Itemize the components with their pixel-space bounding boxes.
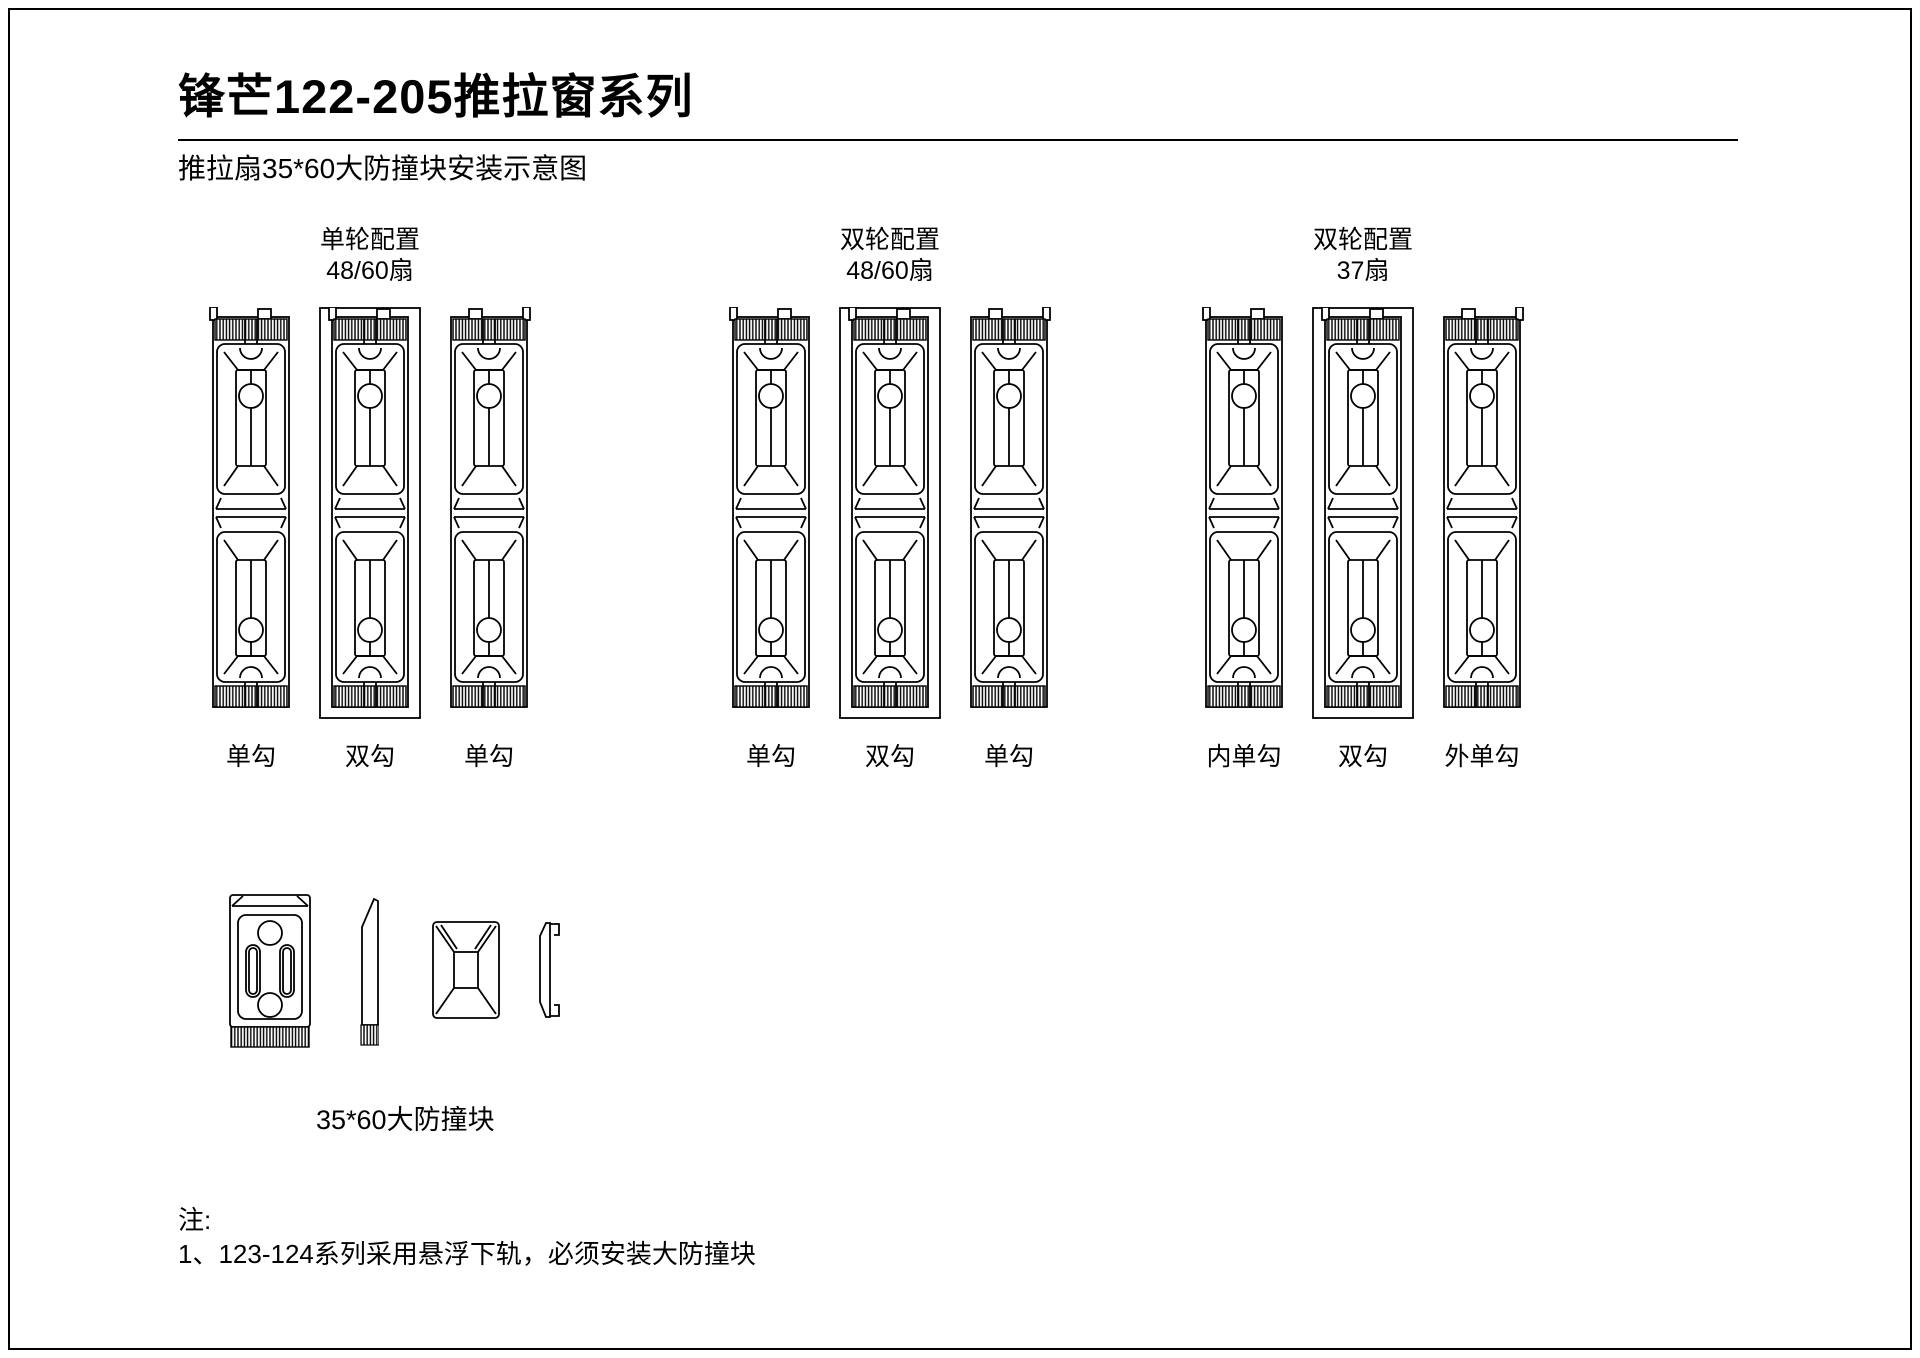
title-divider [178, 139, 1738, 141]
profile-cell: 内单勾 [1202, 307, 1286, 773]
hook-label: 外单勾 [1444, 737, 1519, 773]
sash-profile-inner-single-hook-diagram [1202, 307, 1286, 719]
sash-profile-double-hook-diagram [839, 307, 941, 719]
profile-cell: 单勾 [209, 307, 293, 773]
buffer-block-bracket-diagram [533, 920, 563, 1020]
hook-label: 双勾 [1338, 737, 1388, 773]
sash-profile-outer-single-hook-diagram [1440, 307, 1524, 719]
group-config-label: 双轮配置 [840, 225, 940, 256]
sash-profile-single-hook-diagram [447, 307, 531, 719]
group-sash-label: 48/60扇 [840, 256, 940, 287]
group-header: 双轮配置 37扇 [1313, 225, 1413, 287]
sash-profile-single-hook-diagram [967, 307, 1051, 719]
profile-cell: 外单勾 [1440, 307, 1524, 773]
sash-profile-single-hook-diagram [209, 307, 293, 719]
profiles-row: 单勾 双勾 单勾 [729, 307, 1051, 773]
profile-cell: 单勾 [447, 307, 531, 773]
config-group-double-roller-48-60: 双轮配置 48/60扇 单勾 双勾 单勾 [725, 225, 1055, 773]
group-sash-label: 48/60扇 [320, 256, 420, 287]
profile-cell: 单勾 [729, 307, 813, 773]
notes-heading: 注: [178, 1203, 756, 1237]
page-subtitle: 推拉扇35*60大防撞块安装示意图 [178, 147, 587, 187]
config-group-double-roller-37: 双轮配置 37扇 内单勾 双勾 外单勾 [1198, 225, 1528, 773]
profile-cell: 双勾 [1312, 307, 1414, 773]
hook-label: 双勾 [345, 737, 395, 773]
sash-profile-double-hook-diagram [319, 307, 421, 719]
profile-cell: 双勾 [319, 307, 421, 773]
group-header: 双轮配置 48/60扇 [840, 225, 940, 287]
config-group-single-roller: 单轮配置 48/60扇 单勾 双勾 单勾 [205, 225, 535, 773]
profiles-row: 内单勾 双勾 外单勾 [1202, 307, 1524, 773]
sash-profile-single-hook-diagram [729, 307, 813, 719]
drawing-sheet: 锋芒122-205推拉窗系列 推拉扇35*60大防撞块安装示意图 单轮配置 48… [0, 0, 1920, 1358]
note-item: 1、123-124系列采用悬浮下轨，必须安装大防撞块 [178, 1237, 756, 1271]
buffer-block-pad-diagram [431, 920, 501, 1020]
buffer-block-views [227, 893, 587, 1063]
buffer-block-front-view-diagram [227, 893, 313, 1051]
hook-label: 内单勾 [1206, 737, 1281, 773]
hook-label: 单勾 [746, 737, 796, 773]
hook-label: 单勾 [464, 737, 514, 773]
hook-label: 单勾 [984, 737, 1034, 773]
group-config-label: 双轮配置 [1313, 225, 1413, 256]
page-title: 锋芒122-205推拉窗系列 [178, 58, 694, 127]
group-sash-label: 37扇 [1313, 256, 1413, 287]
profile-cell: 双勾 [839, 307, 941, 773]
hook-label: 单勾 [226, 737, 276, 773]
group-config-label: 单轮配置 [320, 225, 420, 256]
sash-profile-double-hook-diagram [1312, 307, 1414, 719]
buffer-block-label: 35*60大防撞块 [316, 1098, 495, 1137]
notes-block: 注: 1、123-124系列采用悬浮下轨，必须安装大防撞块 [178, 1203, 756, 1271]
profile-cell: 单勾 [967, 307, 1051, 773]
buffer-block-side-strip-diagram [353, 897, 379, 1049]
profiles-row: 单勾 双勾 单勾 [209, 307, 531, 773]
group-header: 单轮配置 48/60扇 [320, 225, 420, 287]
hook-label: 双勾 [865, 737, 915, 773]
